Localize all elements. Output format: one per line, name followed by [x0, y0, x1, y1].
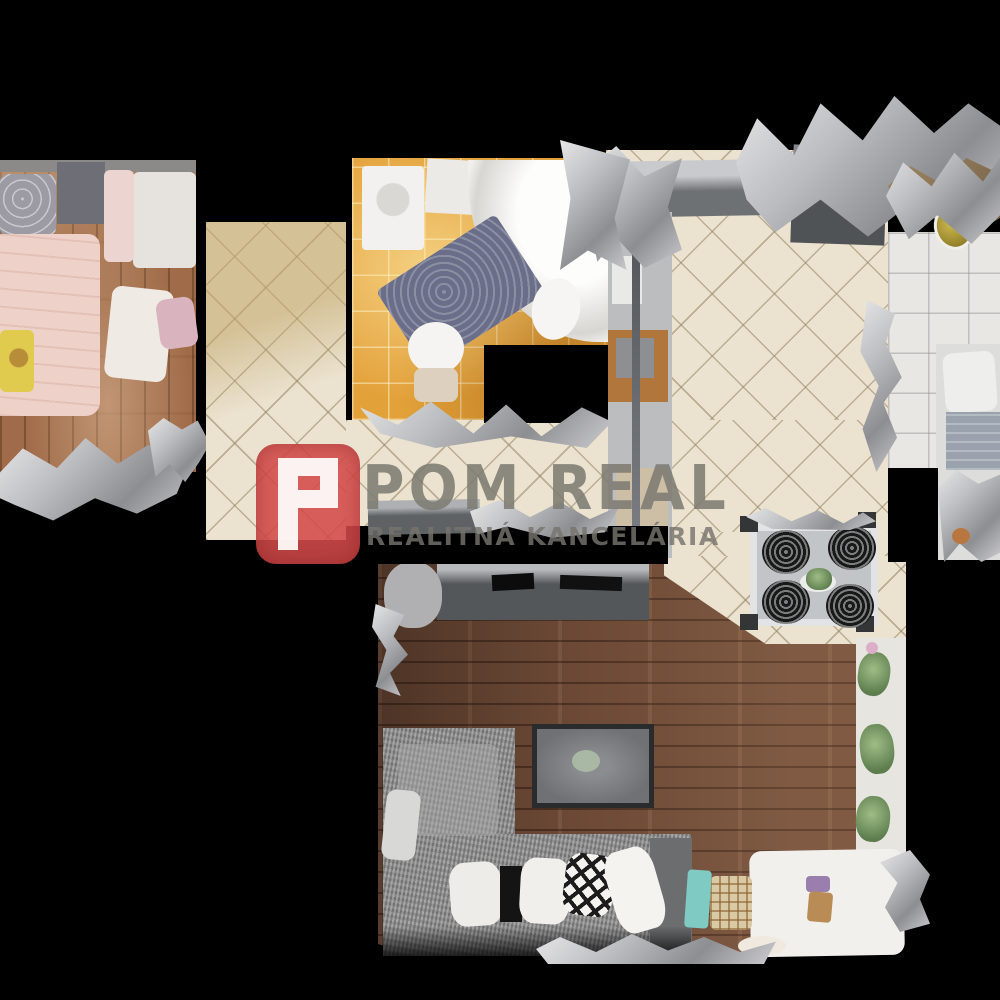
toilet — [408, 322, 464, 374]
yellow-blanket — [0, 330, 34, 392]
table-plant — [806, 568, 832, 590]
second-bed-blanket — [946, 412, 1000, 470]
ottoman-tray — [572, 750, 600, 772]
decor-spot — [952, 528, 970, 544]
scan-artifact — [938, 470, 1000, 562]
pink-pillow — [155, 296, 200, 351]
blanket-print — [806, 876, 830, 892]
pink-linen — [104, 170, 134, 262]
second-bed-pillow — [942, 350, 998, 413]
heart-pillow — [0, 174, 56, 236]
woven-chair — [762, 530, 810, 574]
right-black-wedge — [888, 468, 938, 562]
white-linen-pile — [133, 172, 196, 268]
brand-subtitle: REALITNÁ KANCELÁRIA — [366, 522, 720, 551]
woven-chair — [828, 526, 876, 570]
teal-item — [684, 869, 712, 929]
chaise-blanket — [380, 788, 421, 861]
blanket-print — [807, 891, 834, 923]
brand-title: POM REAL — [362, 452, 730, 524]
washing-machine — [362, 166, 424, 250]
headboard-cushion — [57, 162, 105, 224]
waffle-basket — [710, 876, 752, 930]
floorplan-canvas: POM REAL REALITNÁ KANCELÁRIA — [0, 0, 1000, 1000]
table-leg — [740, 614, 758, 630]
woven-chair — [826, 584, 874, 628]
pillow-gap — [500, 866, 522, 922]
scan-artifact — [148, 418, 210, 482]
brand-logo-p-icon — [256, 444, 360, 564]
brand-logo — [256, 444, 360, 564]
tv-cabinet-items — [492, 573, 535, 591]
toilet-base — [414, 368, 458, 402]
fur-pillow — [448, 860, 504, 927]
tv-cabinet-items — [560, 575, 622, 591]
pink-flower — [866, 642, 878, 654]
